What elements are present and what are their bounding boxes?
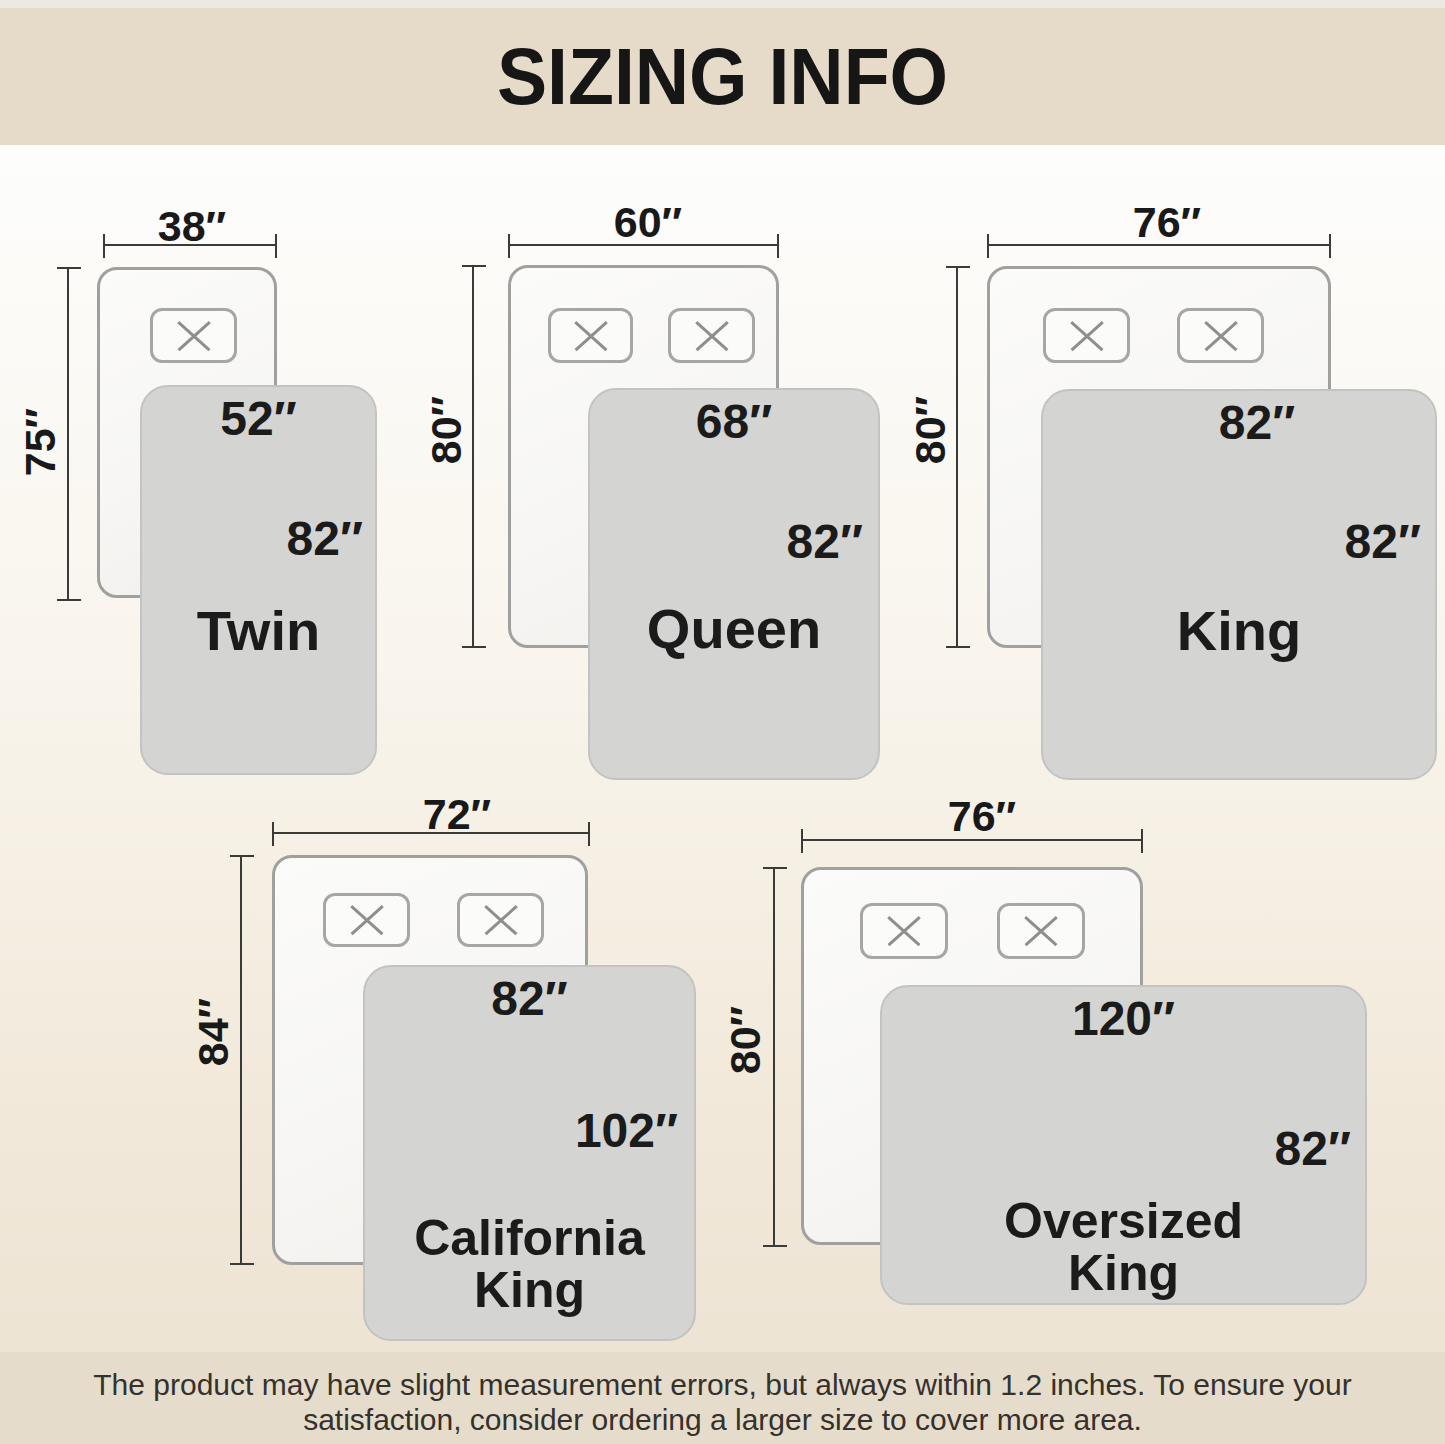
pillow-x-icon xyxy=(350,903,384,937)
pillow-icon xyxy=(1043,308,1130,363)
blanket-length-label: 82″ xyxy=(1345,514,1421,569)
pillow-x-icon xyxy=(574,319,608,353)
page-title: SIZING INFO xyxy=(43,8,1401,145)
pillow-icon xyxy=(1177,308,1264,363)
blanket: 120″ 82″ Oversized King xyxy=(880,985,1367,1305)
sizing-info-graphic: SIZING INFO 38″ 75″ 52″ 82″ Twin 60″ 80″… xyxy=(0,0,1445,1444)
pillow-icon xyxy=(457,893,544,947)
bed-width-dimension-line xyxy=(801,839,1143,841)
blanket-length-label: 82″ xyxy=(287,511,363,566)
bed-length-label: 84″ xyxy=(189,998,238,1066)
blanket-width-label: 68″ xyxy=(696,394,772,449)
pillow-icon xyxy=(860,903,948,959)
size-name-line: King xyxy=(365,1264,694,1316)
bed-length-label: 80″ xyxy=(906,396,955,464)
bed-length-dimension-line xyxy=(472,265,474,648)
bed-length-dimension-line xyxy=(956,266,958,648)
size-name: King xyxy=(1043,603,1435,659)
bed-width-dimension-line xyxy=(987,244,1331,246)
blanket: 68″ 82″ Queen xyxy=(588,388,880,780)
pillow-icon xyxy=(997,903,1085,959)
pillow-icon xyxy=(323,893,410,947)
pillow-x-icon xyxy=(887,914,921,948)
blanket-width-label: 82″ xyxy=(1219,395,1295,450)
size-group-california-king: 72″ 84″ 82″ 102″ California King xyxy=(185,785,700,1355)
blanket: 82″ 102″ California King xyxy=(363,965,696,1341)
footer-note-line: satisfaction, consider ordering a larger… xyxy=(0,1402,1445,1437)
footer-note: The product may have slight measurement … xyxy=(0,1352,1445,1444)
bed-width-dimension-line xyxy=(103,244,277,246)
pillow-x-icon xyxy=(177,319,211,353)
bed-length-label: 75″ xyxy=(16,408,65,476)
bed-length-label: 80″ xyxy=(721,1006,770,1074)
pillow-x-icon xyxy=(695,319,729,353)
blanket-length-label: 82″ xyxy=(1275,1121,1351,1176)
size-name: Queen xyxy=(590,601,878,657)
blanket-width-label: 82″ xyxy=(491,971,567,1026)
blanket-width-label: 52″ xyxy=(220,391,296,446)
bed-length-dimension-line xyxy=(773,867,775,1247)
bed-length-label: 80″ xyxy=(422,396,471,464)
size-name-line: King xyxy=(882,1247,1365,1299)
footer-note-line: The product may have slight measurement … xyxy=(0,1367,1445,1402)
size-name-line: California xyxy=(365,1212,694,1264)
blanket: 52″ 82″ Twin xyxy=(140,385,377,775)
bed-length-dimension-line xyxy=(67,267,69,601)
pillow-x-icon xyxy=(1070,319,1104,353)
bed-width-label: 76″ xyxy=(1133,198,1201,247)
blanket: 82″ 82″ King xyxy=(1041,389,1437,780)
size-group-queen: 60″ 80″ 68″ 82″ Queen xyxy=(420,200,885,800)
bed-width-dimension-line xyxy=(508,244,779,246)
bed-length-dimension-line xyxy=(240,855,242,1265)
bed-width-dimension-line xyxy=(272,832,590,834)
blanket-length-label: 82″ xyxy=(787,514,863,569)
pillow-x-icon xyxy=(1024,914,1058,948)
size-name: Twin xyxy=(142,603,375,659)
blanket-length-label: 102″ xyxy=(575,1103,678,1158)
size-name: Oversized King xyxy=(882,1195,1365,1299)
size-group-oversized-king: 76″ 80″ 120″ 82″ Oversized King xyxy=(715,785,1380,1320)
size-group-twin: 38″ 75″ 52″ 82″ Twin xyxy=(20,205,380,790)
size-name-line: Oversized xyxy=(882,1195,1365,1247)
bed-width-label: 76″ xyxy=(948,792,1016,841)
size-group-king: 76″ 80″ 82″ 82″ King xyxy=(900,200,1445,800)
size-name: California King xyxy=(365,1212,694,1316)
pillow-icon xyxy=(548,308,633,363)
top-edge-strip xyxy=(0,0,1445,8)
pillow-icon xyxy=(150,308,237,363)
blanket-width-label: 120″ xyxy=(1072,991,1175,1046)
pillow-icon xyxy=(668,308,755,363)
bed-width-label: 60″ xyxy=(614,198,682,247)
pillow-x-icon xyxy=(1204,319,1238,353)
header: SIZING INFO xyxy=(0,8,1445,145)
pillow-x-icon xyxy=(484,903,518,937)
